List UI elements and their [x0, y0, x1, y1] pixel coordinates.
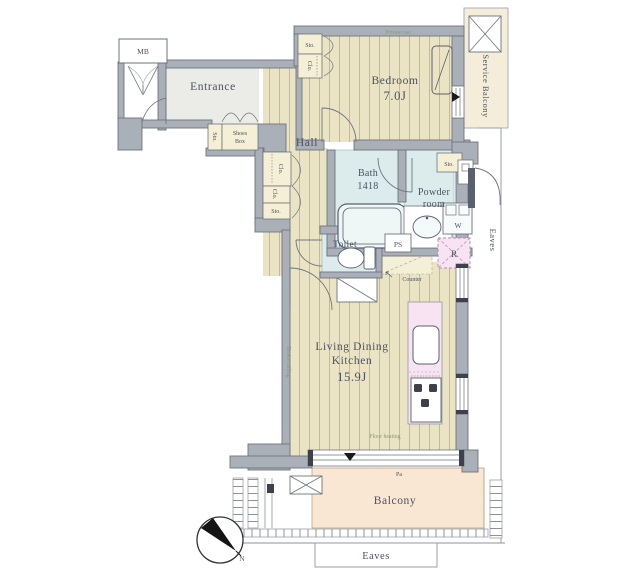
- exterior-side-door: [468, 168, 500, 208]
- bath-label: Bath: [358, 168, 378, 179]
- wall-entrance-bottom: [140, 120, 212, 128]
- wall-ldk-bottom-left: [230, 456, 312, 468]
- hall-clo-box-1: [263, 152, 291, 186]
- toilet-bowl: [338, 247, 375, 269]
- balcony-label: Balcony: [374, 495, 417, 507]
- ldk-side-window-2: [456, 374, 468, 414]
- wall-block-left: [118, 118, 142, 150]
- eaves-right-label: Eaves: [488, 229, 498, 252]
- powder-label-2: room: [423, 199, 445, 210]
- right-hatch-strip: [490, 480, 502, 538]
- service-balcony-door: [452, 86, 464, 118]
- wall-bedroom-right-upper: [452, 36, 464, 86]
- pipe-strip-2: [248, 478, 258, 528]
- mb-label: MB: [137, 47, 149, 56]
- eaves-bottom-label: Eaves: [362, 551, 390, 562]
- wall-mb-left: [118, 62, 124, 120]
- hall-clo-label-2: Clo.: [271, 189, 277, 200]
- bedroom-label: Bedroom: [372, 75, 419, 87]
- hall-clo-label-1: Clo.: [277, 164, 283, 175]
- fridge-label: R: [451, 250, 458, 260]
- bath-size-label: 1418: [357, 181, 378, 192]
- north-label: N: [239, 555, 244, 563]
- hall-sto-label: Sto.: [271, 209, 281, 215]
- pipe-strip-1: [233, 478, 243, 528]
- wall-entrance-top: [158, 60, 298, 68]
- balcony-railing: [233, 529, 488, 537]
- bedroom-annotation: Private use: [385, 30, 411, 36]
- floorplan: MB Entrance Sto. Shoes Box Hall Sto. Clo…: [0, 0, 640, 569]
- mb-door-arcs: [128, 66, 158, 95]
- pa-label: Pa: [396, 472, 402, 478]
- wall-right-2: [456, 302, 468, 374]
- mb-door-leaves: [128, 66, 158, 95]
- wall-hall-left: [255, 148, 263, 224]
- ldk-label-2: Kitchen: [332, 355, 373, 367]
- wall-bedroom-right-lower: [452, 118, 464, 144]
- entrance-label: Entrance: [190, 81, 236, 93]
- wall-bath-powder: [398, 150, 406, 202]
- balcony-equipment: [290, 476, 322, 494]
- wall-ldk-left: [282, 230, 290, 458]
- hall-label: Hall: [296, 137, 318, 149]
- ldk-side-window-1: [456, 264, 468, 302]
- compass: [197, 517, 243, 563]
- shoes-box: [222, 124, 258, 150]
- stove: [411, 376, 441, 422]
- ldk-label-1: Living Dining: [315, 341, 388, 353]
- shoes-box-label-2: Box: [235, 139, 245, 145]
- pipe-block: [267, 484, 274, 493]
- balcony-window: [308, 450, 464, 466]
- ldk-area-label: 15.9J: [337, 370, 367, 384]
- shoes-box-label-1: Shoes: [233, 131, 248, 137]
- wall-toilet-bottom: [320, 272, 382, 278]
- counter-label: Counter: [402, 277, 421, 283]
- kitchen-sink: [413, 326, 439, 364]
- washer-label: W: [454, 221, 462, 230]
- kitchen-counter: [408, 302, 442, 424]
- bedroom-clo-label: Clo.: [306, 61, 312, 72]
- floor-heating-annotation: Floor heating: [369, 434, 400, 440]
- toilet-label: Toilet: [333, 240, 357, 250]
- bedroom-sto-label: Sto.: [305, 43, 315, 49]
- service-balcony-equipment: [469, 16, 501, 52]
- hanging-cabinet: [337, 278, 377, 302]
- powder-sto-label: Sto.: [444, 162, 454, 168]
- floorplan-canvas: MB Entrance Sto. Shoes Box Hall Sto. Clo…: [0, 0, 640, 569]
- service-balcony-label: Service Balcony: [481, 54, 491, 118]
- wall-entrance-left: [158, 60, 166, 130]
- bedroom-floor: [302, 34, 454, 142]
- ps-label: PS: [394, 240, 402, 249]
- entrance-sto-label: Sto.: [211, 132, 217, 142]
- powder-label-1: Powder: [418, 187, 451, 198]
- bedroom-area-label: 7.0J: [384, 89, 407, 103]
- ldk-left-annotation: Down ceiling: [285, 346, 291, 377]
